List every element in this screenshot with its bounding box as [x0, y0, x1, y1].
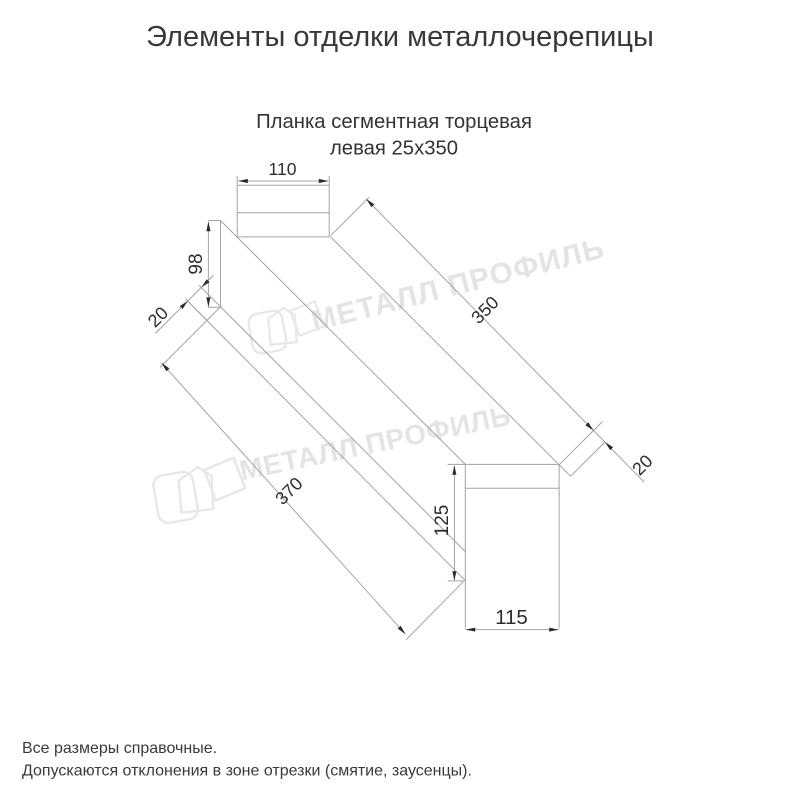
svg-text:левая 25х350: левая 25х350 — [330, 138, 458, 160]
svg-text:Планка сегментная торцевая: Планка сегментная торцевая — [256, 111, 532, 133]
svg-text:Все размеры справочные.: Все размеры справочные. — [22, 740, 217, 757]
svg-text:Допускаются отклонения в зоне: Допускаются отклонения в зоне отрезки (с… — [22, 763, 472, 780]
svg-text:98: 98 — [186, 253, 207, 274]
svg-text:110: 110 — [269, 159, 297, 179]
svg-text:115: 115 — [495, 606, 528, 629]
svg-text:Элементы отделки металлочерепи: Элементы отделки металлочерепицы — [146, 21, 654, 53]
svg-text:125: 125 — [432, 505, 453, 537]
